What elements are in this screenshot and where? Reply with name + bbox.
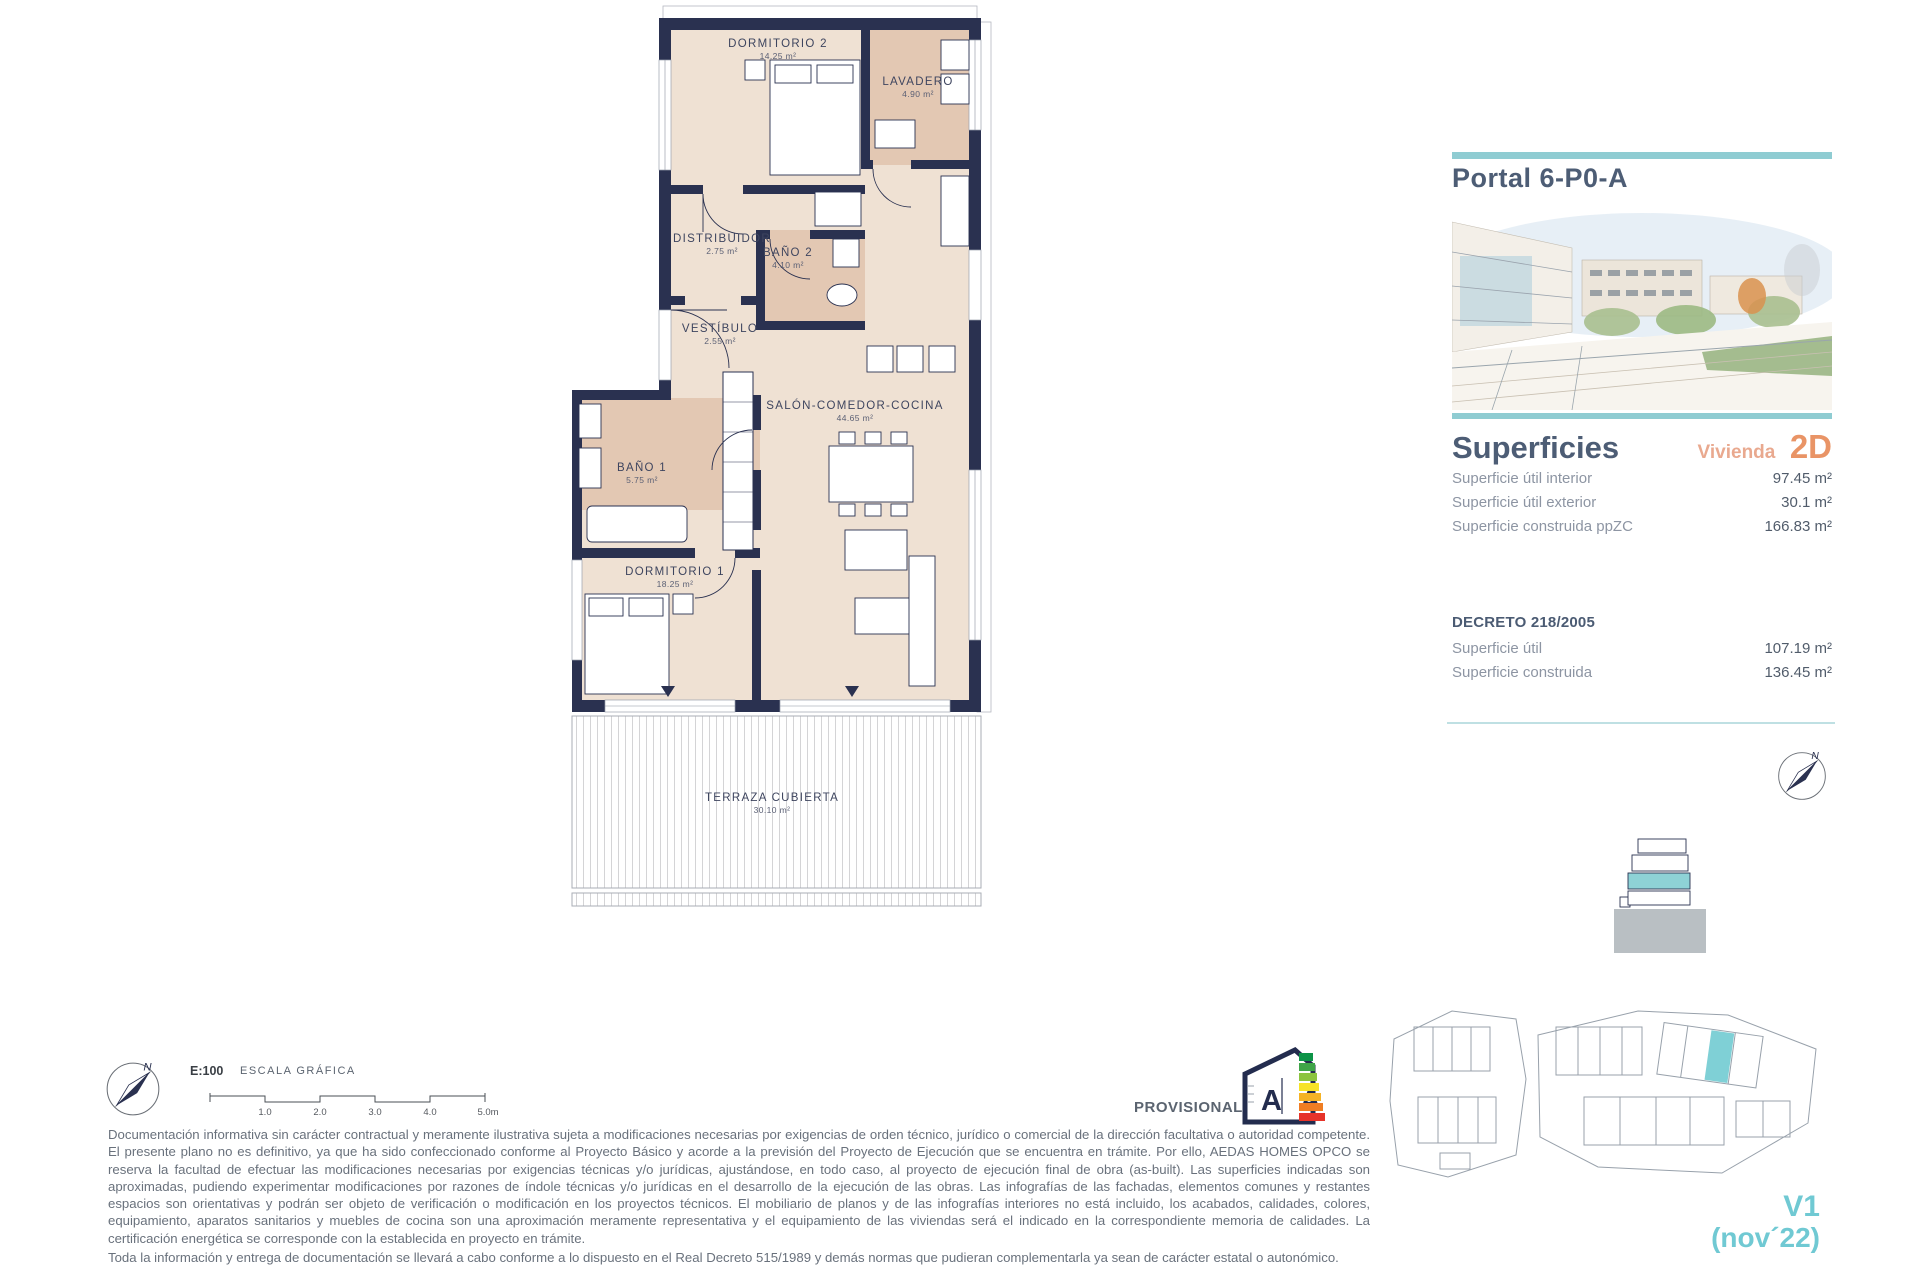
room-area: 18.25 m²: [625, 579, 725, 589]
portal-title: Portal 6-P0-A: [1452, 163, 1628, 194]
scale-tick: 3.0: [368, 1107, 381, 1118]
disclaimer-paragraph-2: Toda la información y entrega de documen…: [108, 1249, 1370, 1266]
superficies-rule: [1452, 413, 1832, 419]
room-label-dormitorio-1: DORMITORIO 1 18.25 m²: [625, 566, 725, 589]
room-name: DORMITORIO 2: [728, 38, 828, 50]
superficies-heading: Superficies: [1452, 430, 1619, 466]
room-area: 2.55 m²: [682, 336, 758, 346]
room-label-terraza: TERRAZA CUBIERTA 30.10 m²: [705, 792, 839, 815]
scale-bar: 1.0 2.0 3.0 4.0 5.0m: [205, 1088, 505, 1120]
compass-north-label: N: [143, 1061, 152, 1073]
room-label-salon: SALÓN-COMEDOR-COCINA 44.65 m²: [766, 400, 943, 423]
superficie-value: 97.45 m²: [1773, 470, 1832, 487]
scale-ratio: E:100: [190, 1064, 223, 1078]
room-name: SALÓN-COMEDOR-COCINA: [766, 400, 943, 412]
building-section-diagram: [1608, 835, 1713, 960]
floorplan-drawing: [545, 0, 1000, 915]
room-name: BAÑO 1: [617, 462, 667, 474]
superficies-header: Superficies Vivienda 2D: [1452, 428, 1832, 466]
floorplan-page: DORMITORIO 2 14.25 m² LAVADERO 4.90 m² D…: [0, 0, 1920, 1280]
compass-icon: N: [1774, 748, 1830, 804]
room-area: 14.25 m²: [728, 51, 828, 61]
superficie-value: 166.83 m²: [1764, 518, 1832, 535]
room-label-dormitorio-2: DORMITORIO 2 14.25 m²: [728, 38, 828, 61]
legal-disclaimer: Documentación informativa sin carácter c…: [108, 1126, 1370, 1268]
scale-tick: 4.0: [423, 1107, 436, 1118]
superficie-row: Superficie útil exterior 30.1 m²: [1452, 494, 1832, 511]
room-name: LAVADERO: [882, 76, 953, 88]
decreto-row: Superficie útil 107.19 m²: [1452, 640, 1832, 657]
room-label-bano-1: BAÑO 1 5.75 m²: [617, 462, 667, 485]
plan-version: V1 (nov´22): [1711, 1190, 1820, 1254]
sidebar-divider: [1447, 722, 1835, 724]
room-name: DORMITORIO 1: [625, 566, 725, 578]
room-area: 44.65 m²: [766, 413, 943, 423]
vivienda-code: 2D: [1790, 428, 1832, 465]
scale-tick: 2.0: [313, 1107, 326, 1118]
sidebar-top-rule: [1452, 152, 1832, 159]
room-label-bano-2: BAÑO 2 4.10 m²: [763, 247, 813, 270]
decreto-row: Superficie construida 136.45 m²: [1452, 664, 1832, 681]
building-rendering-image: [1452, 200, 1832, 410]
room-area: 4.10 m²: [763, 260, 813, 270]
superficie-value: 30.1 m²: [1781, 494, 1832, 511]
decreto-label: Superficie construida: [1452, 664, 1592, 681]
superficie-row: Superficie útil interior 97.45 m²: [1452, 470, 1832, 487]
provisional-label: PROVISIONAL: [1134, 1099, 1243, 1116]
scale-caption: ESCALA GRÁFICA: [240, 1065, 356, 1077]
decreto-heading: DECRETO 218/2005: [1452, 614, 1595, 631]
room-area: 5.75 m²: [617, 475, 667, 485]
energy-rating-icon: A A: [1237, 1044, 1331, 1126]
room-label-lavadero: LAVADERO 4.90 m²: [882, 76, 953, 99]
decreto-value: 107.19 m²: [1764, 640, 1832, 657]
room-name: TERRAZA CUBIERTA: [705, 792, 839, 804]
superficie-label: Superficie útil exterior: [1452, 494, 1596, 511]
room-area: 4.90 m²: [882, 89, 953, 99]
superficie-label: Superficie útil interior: [1452, 470, 1592, 487]
room-name: BAÑO 2: [763, 247, 813, 259]
room-area: 2.75 m²: [673, 246, 771, 256]
superficie-label: Superficie construida ppZC: [1452, 518, 1633, 535]
scale-tick: 5.0m: [477, 1107, 498, 1118]
vivienda-label: Vivienda: [1698, 442, 1776, 463]
room-name: VESTÍBULO: [682, 323, 758, 335]
decreto-value: 136.45 m²: [1764, 664, 1832, 681]
decreto-label: Superficie útil: [1452, 640, 1542, 657]
site-plan-diagram: [1388, 1005, 1820, 1200]
compass-north-label: N: [1811, 751, 1819, 762]
room-label-distribuidor: DISTRIBUIDOR 2.75 m²: [673, 233, 771, 256]
superficie-row: Superficie construida ppZC 166.83 m²: [1452, 518, 1832, 535]
disclaimer-paragraph-1: Documentación informativa sin carácter c…: [108, 1126, 1370, 1247]
compass-icon: N: [102, 1058, 164, 1120]
room-area: 30.10 m²: [705, 805, 839, 815]
scale-tick: 1.0: [258, 1107, 271, 1118]
room-label-vestibulo: VESTÍBULO 2.55 m²: [682, 323, 758, 346]
version-date: (nov´22): [1711, 1223, 1820, 1254]
version-number: V1: [1711, 1190, 1820, 1223]
room-name: DISTRIBUIDOR: [673, 233, 771, 245]
